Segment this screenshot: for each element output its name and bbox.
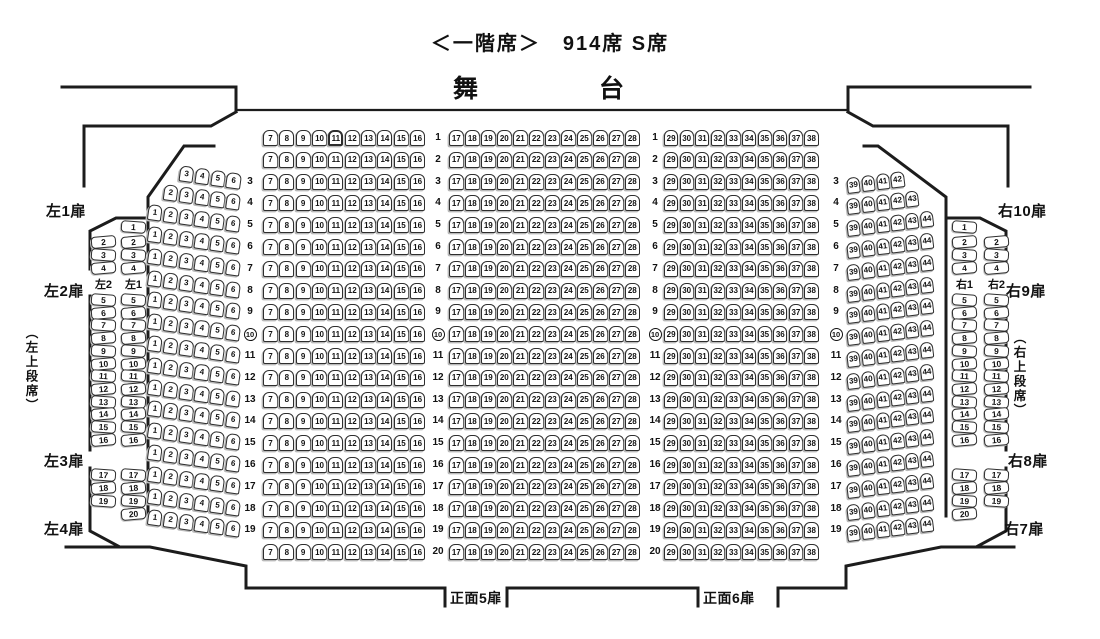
seat[interactable]: 4 — [194, 450, 210, 467]
seat[interactable]: 21 — [513, 522, 528, 538]
seat[interactable]: 25 — [577, 544, 592, 560]
seat[interactable]: 8 — [279, 413, 294, 429]
seat[interactable]: 26 — [593, 304, 608, 320]
seat[interactable]: 19 — [481, 174, 496, 190]
seat[interactable]: 35 — [758, 479, 772, 495]
seat[interactable]: 43 — [905, 300, 920, 317]
seat[interactable]: 4 — [194, 254, 210, 271]
seat[interactable]: 2 — [163, 228, 179, 245]
seat[interactable]: 18 — [465, 501, 480, 517]
seat[interactable]: 25 — [577, 130, 592, 146]
seat[interactable]: 9 — [296, 370, 311, 386]
seat[interactable]: 37 — [789, 370, 803, 386]
seat[interactable]: 38 — [804, 370, 818, 386]
seat[interactable]: 23 — [545, 435, 560, 451]
seat[interactable]: 30 — [680, 370, 694, 386]
seat[interactable]: 18 — [91, 481, 117, 495]
seat[interactable]: 37 — [789, 413, 803, 429]
seat[interactable]: 30 — [680, 239, 694, 255]
seat[interactable]: 29 — [664, 348, 678, 364]
seat[interactable]: 25 — [577, 522, 592, 538]
seat[interactable]: 7 — [263, 457, 278, 473]
seat[interactable]: 3 — [178, 470, 194, 487]
seat[interactable]: 3 — [952, 248, 978, 261]
seat[interactable]: 41 — [875, 194, 890, 211]
seat[interactable]: 33 — [726, 348, 740, 364]
seat[interactable]: 13 — [361, 413, 376, 429]
seat[interactable]: 4 — [121, 261, 147, 275]
seat[interactable]: 25 — [577, 501, 592, 517]
seat[interactable]: 43 — [905, 518, 920, 535]
seat[interactable]: 5 — [210, 453, 226, 470]
seat[interactable]: 5 — [210, 235, 226, 252]
seat[interactable]: 37 — [789, 217, 803, 233]
seat[interactable]: 19 — [984, 494, 1010, 507]
seat[interactable]: 23 — [545, 326, 560, 342]
seat[interactable]: 35 — [758, 174, 772, 190]
seat[interactable]: 3 — [178, 448, 194, 465]
seat[interactable]: 38 — [804, 479, 818, 495]
seat[interactable]: 12 — [345, 370, 360, 386]
seat[interactable]: 35 — [758, 195, 772, 211]
seat[interactable]: 33 — [726, 304, 740, 320]
seat[interactable]: 41 — [875, 303, 890, 320]
seat[interactable]: 38 — [804, 392, 818, 408]
seat[interactable]: 27 — [609, 544, 624, 560]
seat[interactable]: 18 — [465, 370, 480, 386]
seat[interactable]: 35 — [758, 435, 772, 451]
seat[interactable]: 42 — [890, 171, 905, 188]
seat[interactable]: 36 — [773, 304, 787, 320]
seat[interactable]: 40 — [861, 414, 876, 431]
seat[interactable]: 3 — [178, 361, 194, 378]
seat[interactable]: 43 — [905, 191, 920, 208]
seat[interactable]: 14 — [377, 239, 392, 255]
seat[interactable]: 39 — [846, 416, 861, 433]
seat[interactable]: 11 — [328, 501, 343, 517]
seat[interactable]: 34 — [742, 326, 756, 342]
seat[interactable]: 8 — [279, 522, 294, 538]
seat[interactable]: 8 — [279, 304, 294, 320]
seat[interactable]: 40 — [861, 370, 876, 387]
seat[interactable]: 31 — [695, 283, 709, 299]
seat[interactable]: 41 — [875, 325, 890, 342]
seat[interactable]: 7 — [984, 319, 1010, 332]
seat[interactable]: 27 — [609, 130, 624, 146]
seat[interactable]: 8 — [279, 435, 294, 451]
seat[interactable]: 33 — [726, 283, 740, 299]
seat[interactable]: 7 — [263, 392, 278, 408]
seat[interactable]: 30 — [680, 326, 694, 342]
seat[interactable]: 13 — [361, 304, 376, 320]
seat[interactable]: 31 — [695, 370, 709, 386]
seat[interactable]: 16 — [91, 433, 117, 447]
seat[interactable]: 19 — [481, 152, 496, 168]
seat[interactable]: 7 — [263, 348, 278, 364]
seat[interactable]: 42 — [890, 236, 905, 253]
seat[interactable]: 2 — [163, 446, 179, 463]
seat[interactable]: 41 — [875, 260, 890, 277]
seat[interactable]: 42 — [890, 345, 905, 362]
seat[interactable]: 26 — [593, 152, 608, 168]
seat[interactable]: 4 — [91, 261, 117, 275]
seat[interactable]: 2 — [984, 235, 1010, 249]
seat[interactable]: 15 — [394, 239, 409, 255]
seat[interactable]: 9 — [296, 326, 311, 342]
seat[interactable]: 9 — [296, 152, 311, 168]
seat[interactable]: 9 — [952, 344, 978, 357]
seat[interactable]: 23 — [545, 501, 560, 517]
seat[interactable]: 30 — [680, 152, 694, 168]
seat[interactable]: 43 — [905, 365, 920, 382]
seat[interactable]: 13 — [361, 239, 376, 255]
seat[interactable]: 7 — [263, 152, 278, 168]
seat[interactable]: 17 — [449, 435, 464, 451]
seat[interactable]: 5 — [210, 365, 226, 382]
seat[interactable]: 27 — [609, 217, 624, 233]
seat[interactable]: 44 — [919, 320, 934, 337]
seat[interactable]: 1 — [147, 400, 163, 417]
seat[interactable]: 29 — [664, 457, 678, 473]
seat[interactable]: 27 — [609, 457, 624, 473]
seat[interactable]: 33 — [726, 479, 740, 495]
seat[interactable]: 11 — [952, 369, 978, 382]
seat[interactable]: 10 — [312, 501, 327, 517]
seat[interactable]: 18 — [952, 481, 978, 495]
seat[interactable]: 22 — [529, 304, 544, 320]
seat[interactable]: 42 — [890, 323, 905, 340]
seat[interactable]: 25 — [577, 479, 592, 495]
seat[interactable]: 38 — [804, 283, 818, 299]
seat[interactable]: 15 — [394, 457, 409, 473]
seat[interactable]: 17 — [449, 261, 464, 277]
seat[interactable]: 40 — [861, 523, 876, 540]
seat[interactable]: 27 — [609, 479, 624, 495]
seat[interactable]: 36 — [773, 152, 787, 168]
seat[interactable]: 24 — [561, 239, 576, 255]
seat[interactable]: 34 — [742, 501, 756, 517]
seat[interactable]: 17 — [91, 468, 117, 481]
seat[interactable]: 4 — [194, 516, 210, 533]
seat[interactable]: 29 — [664, 261, 678, 277]
seat[interactable]: 42 — [890, 367, 905, 384]
seat[interactable]: 24 — [561, 261, 576, 277]
seat[interactable]: 32 — [711, 283, 725, 299]
seat[interactable]: 32 — [711, 522, 725, 538]
seat[interactable]: 15 — [394, 501, 409, 517]
seat[interactable]: 29 — [664, 479, 678, 495]
seat[interactable]: 40 — [861, 327, 876, 344]
seat[interactable]: 15 — [394, 435, 409, 451]
seat[interactable]: 1 — [147, 444, 163, 461]
seat[interactable]: 32 — [711, 479, 725, 495]
seat[interactable]: 19 — [952, 494, 978, 507]
seat[interactable]: 19 — [481, 326, 496, 342]
seat[interactable]: 29 — [664, 501, 678, 517]
seat[interactable]: 1 — [147, 378, 163, 395]
seat[interactable]: 3 — [178, 339, 194, 356]
seat[interactable]: 32 — [711, 239, 725, 255]
seat[interactable]: 21 — [513, 370, 528, 386]
seat[interactable]: 30 — [680, 130, 694, 146]
seat[interactable]: 10 — [312, 261, 327, 277]
seat[interactable]: 39 — [846, 525, 861, 542]
seat[interactable]: 37 — [789, 457, 803, 473]
seat[interactable]: 19 — [481, 348, 496, 364]
seat[interactable]: 9 — [296, 392, 311, 408]
seat[interactable]: 14 — [377, 392, 392, 408]
seat[interactable]: 10 — [312, 283, 327, 299]
seat[interactable]: 16 — [410, 522, 425, 538]
seat[interactable]: 44 — [919, 494, 934, 511]
seat[interactable]: 16 — [410, 457, 425, 473]
seat[interactable]: 27 — [609, 283, 624, 299]
seat[interactable]: 9 — [296, 544, 311, 560]
seat[interactable]: 7 — [263, 174, 278, 190]
seat[interactable]: 32 — [711, 152, 725, 168]
seat[interactable]: 31 — [695, 174, 709, 190]
seat[interactable]: 30 — [680, 195, 694, 211]
seat[interactable]: 6 — [225, 171, 241, 188]
seat[interactable]: 6 — [225, 324, 241, 341]
seat[interactable]: 5 — [210, 344, 226, 361]
seat[interactable]: 28 — [625, 392, 640, 408]
seat[interactable]: 35 — [758, 370, 772, 386]
seat[interactable]: 18 — [465, 283, 480, 299]
seat[interactable]: 2 — [163, 184, 179, 201]
seat[interactable]: 37 — [789, 501, 803, 517]
seat[interactable]: 41 — [875, 412, 890, 429]
seat[interactable]: 28 — [625, 522, 640, 538]
seat[interactable]: 30 — [680, 283, 694, 299]
seat[interactable]: 25 — [577, 392, 592, 408]
seat[interactable]: 34 — [742, 348, 756, 364]
seat[interactable]: 31 — [695, 239, 709, 255]
seat[interactable]: 19 — [481, 239, 496, 255]
seat[interactable]: 23 — [545, 544, 560, 560]
seat[interactable]: 3 — [984, 248, 1010, 261]
seat[interactable]: 18 — [465, 544, 480, 560]
seat[interactable]: 15 — [394, 174, 409, 190]
seat[interactable]: 8 — [279, 392, 294, 408]
seat[interactable]: 32 — [711, 370, 725, 386]
seat[interactable]: 3 — [178, 165, 194, 182]
seat[interactable]: 39 — [846, 176, 861, 193]
seat[interactable]: 8 — [952, 331, 978, 345]
seat[interactable]: 17 — [449, 501, 464, 517]
seat[interactable]: 12 — [345, 348, 360, 364]
seat[interactable]: 26 — [593, 544, 608, 560]
seat[interactable]: 23 — [545, 130, 560, 146]
seat[interactable]: 41 — [875, 456, 890, 473]
seat[interactable]: 4 — [984, 261, 1010, 275]
seat[interactable]: 15 — [394, 130, 409, 146]
seat[interactable]: 36 — [773, 326, 787, 342]
seat[interactable]: 22 — [529, 261, 544, 277]
seat[interactable]: 10 — [312, 435, 327, 451]
seat[interactable]: 7 — [263, 261, 278, 277]
seat[interactable]: 20 — [497, 217, 512, 233]
seat[interactable]: 21 — [513, 413, 528, 429]
seat[interactable]: 13 — [361, 217, 376, 233]
seat[interactable]: 1 — [147, 422, 163, 439]
seat[interactable]: 28 — [625, 479, 640, 495]
seat[interactable]: 43 — [905, 343, 920, 360]
seat[interactable]: 44 — [919, 472, 934, 489]
seat[interactable]: 11 — [121, 369, 147, 382]
seat[interactable]: 12 — [345, 174, 360, 190]
seat[interactable]: 6 — [225, 302, 241, 319]
seat[interactable]: 23 — [545, 348, 560, 364]
seat[interactable]: 18 — [465, 413, 480, 429]
seat[interactable]: 1 — [147, 466, 163, 483]
seat[interactable]: 22 — [529, 217, 544, 233]
seat[interactable]: 24 — [561, 217, 576, 233]
seat[interactable]: 7 — [263, 501, 278, 517]
seat[interactable]: 39 — [846, 263, 861, 280]
seat[interactable]: 6 — [121, 306, 147, 320]
seat[interactable]: 32 — [711, 261, 725, 277]
seat[interactable]: 25 — [577, 326, 592, 342]
seat[interactable]: 21 — [513, 392, 528, 408]
seat[interactable]: 1 — [147, 313, 163, 330]
seat[interactable]: 29 — [664, 217, 678, 233]
seat[interactable]: 31 — [695, 544, 709, 560]
seat[interactable]: 36 — [773, 130, 787, 146]
seat[interactable]: 25 — [577, 152, 592, 168]
seat[interactable]: 26 — [593, 130, 608, 146]
seat[interactable]: 2 — [163, 206, 179, 223]
seat[interactable]: 36 — [773, 501, 787, 517]
seat[interactable]: 5 — [210, 191, 226, 208]
seat[interactable]: 16 — [121, 433, 147, 447]
seat[interactable]: 6 — [225, 193, 241, 210]
seat[interactable]: 18 — [465, 130, 480, 146]
seat[interactable]: 2 — [163, 424, 179, 441]
seat[interactable]: 25 — [577, 435, 592, 451]
seat[interactable]: 8 — [279, 457, 294, 473]
seat[interactable]: 6 — [225, 259, 241, 276]
seat[interactable]: 25 — [577, 195, 592, 211]
seat[interactable]: 1 — [147, 487, 163, 504]
seat[interactable]: 32 — [711, 326, 725, 342]
seat[interactable]: 38 — [804, 217, 818, 233]
seat[interactable]: 27 — [609, 392, 624, 408]
seat[interactable]: 29 — [664, 195, 678, 211]
seat[interactable]: 37 — [789, 283, 803, 299]
seat[interactable]: 18 — [465, 239, 480, 255]
seat[interactable]: 10 — [312, 413, 327, 429]
seat[interactable]: 6 — [225, 280, 241, 297]
seat[interactable]: 13 — [361, 392, 376, 408]
seat[interactable]: 25 — [577, 304, 592, 320]
seat[interactable]: 13 — [361, 326, 376, 342]
seat[interactable]: 19 — [481, 195, 496, 211]
seat[interactable]: 1 — [147, 291, 163, 308]
seat[interactable]: 40 — [861, 479, 876, 496]
seat[interactable]: 29 — [664, 152, 678, 168]
seat[interactable]: 28 — [625, 501, 640, 517]
seat[interactable]: 6 — [952, 306, 978, 320]
seat[interactable]: 18 — [465, 195, 480, 211]
seat[interactable]: 33 — [726, 413, 740, 429]
seat[interactable]: 21 — [513, 435, 528, 451]
seat[interactable]: 35 — [758, 130, 772, 146]
seat[interactable]: 15 — [91, 420, 117, 433]
seat[interactable]: 26 — [593, 261, 608, 277]
seat[interactable]: 32 — [711, 304, 725, 320]
seat[interactable]: 23 — [545, 152, 560, 168]
seat[interactable]: 12 — [345, 130, 360, 146]
seat[interactable]: 42 — [890, 498, 905, 515]
seat[interactable]: 10 — [312, 152, 327, 168]
seat[interactable]: 28 — [625, 261, 640, 277]
seat[interactable]: 16 — [984, 433, 1010, 447]
seat[interactable]: 42 — [890, 476, 905, 493]
seat[interactable]: 39 — [846, 372, 861, 389]
seat[interactable]: 20 — [952, 507, 978, 521]
seat[interactable]: 12 — [345, 544, 360, 560]
seat[interactable]: 11 — [328, 326, 343, 342]
seat[interactable]: 19 — [481, 217, 496, 233]
seat[interactable]: 22 — [529, 239, 544, 255]
seat[interactable]: 43 — [905, 321, 920, 338]
seat[interactable]: 4 — [194, 494, 210, 511]
seat[interactable]: 38 — [804, 522, 818, 538]
seat[interactable]: 11 — [328, 522, 343, 538]
seat[interactable]: 39 — [846, 241, 861, 258]
seat[interactable]: 3 — [178, 383, 194, 400]
seat[interactable]: 5 — [91, 293, 117, 306]
seat[interactable]: 11 — [328, 304, 343, 320]
seat[interactable]: 14 — [377, 435, 392, 451]
seat[interactable]: 19 — [91, 494, 117, 507]
seat[interactable]: 38 — [804, 174, 818, 190]
seat[interactable]: 17 — [449, 348, 464, 364]
seat[interactable]: 31 — [695, 435, 709, 451]
seat[interactable]: 5 — [210, 256, 226, 273]
seat[interactable]: 15 — [394, 152, 409, 168]
seat[interactable]: 2 — [163, 402, 179, 419]
seat[interactable]: 16 — [410, 348, 425, 364]
seat[interactable]: 17 — [449, 174, 464, 190]
seat[interactable]: 24 — [561, 435, 576, 451]
seat[interactable]: 39 — [846, 198, 861, 215]
seat[interactable]: 13 — [361, 261, 376, 277]
seat[interactable]: 27 — [609, 195, 624, 211]
seat[interactable]: 13 — [361, 544, 376, 560]
seat[interactable]: 12 — [345, 283, 360, 299]
seat[interactable]: 34 — [742, 457, 756, 473]
seat[interactable]: 31 — [695, 261, 709, 277]
seat[interactable]: 43 — [905, 234, 920, 251]
seat[interactable]: 17 — [449, 479, 464, 495]
seat[interactable]: 7 — [263, 435, 278, 451]
seat[interactable]: 40 — [861, 349, 876, 366]
seat[interactable]: 16 — [410, 370, 425, 386]
seat[interactable]: 12 — [345, 501, 360, 517]
seat[interactable]: 35 — [758, 544, 772, 560]
seat[interactable]: 24 — [561, 501, 576, 517]
seat[interactable]: 12 — [345, 239, 360, 255]
seat[interactable]: 43 — [905, 278, 920, 295]
seat[interactable]: 11 — [328, 348, 343, 364]
seat[interactable]: 30 — [680, 261, 694, 277]
seat[interactable]: 38 — [804, 544, 818, 560]
seat[interactable]: 13 — [361, 152, 376, 168]
seat[interactable]: 37 — [789, 435, 803, 451]
seat[interactable]: 9 — [296, 457, 311, 473]
